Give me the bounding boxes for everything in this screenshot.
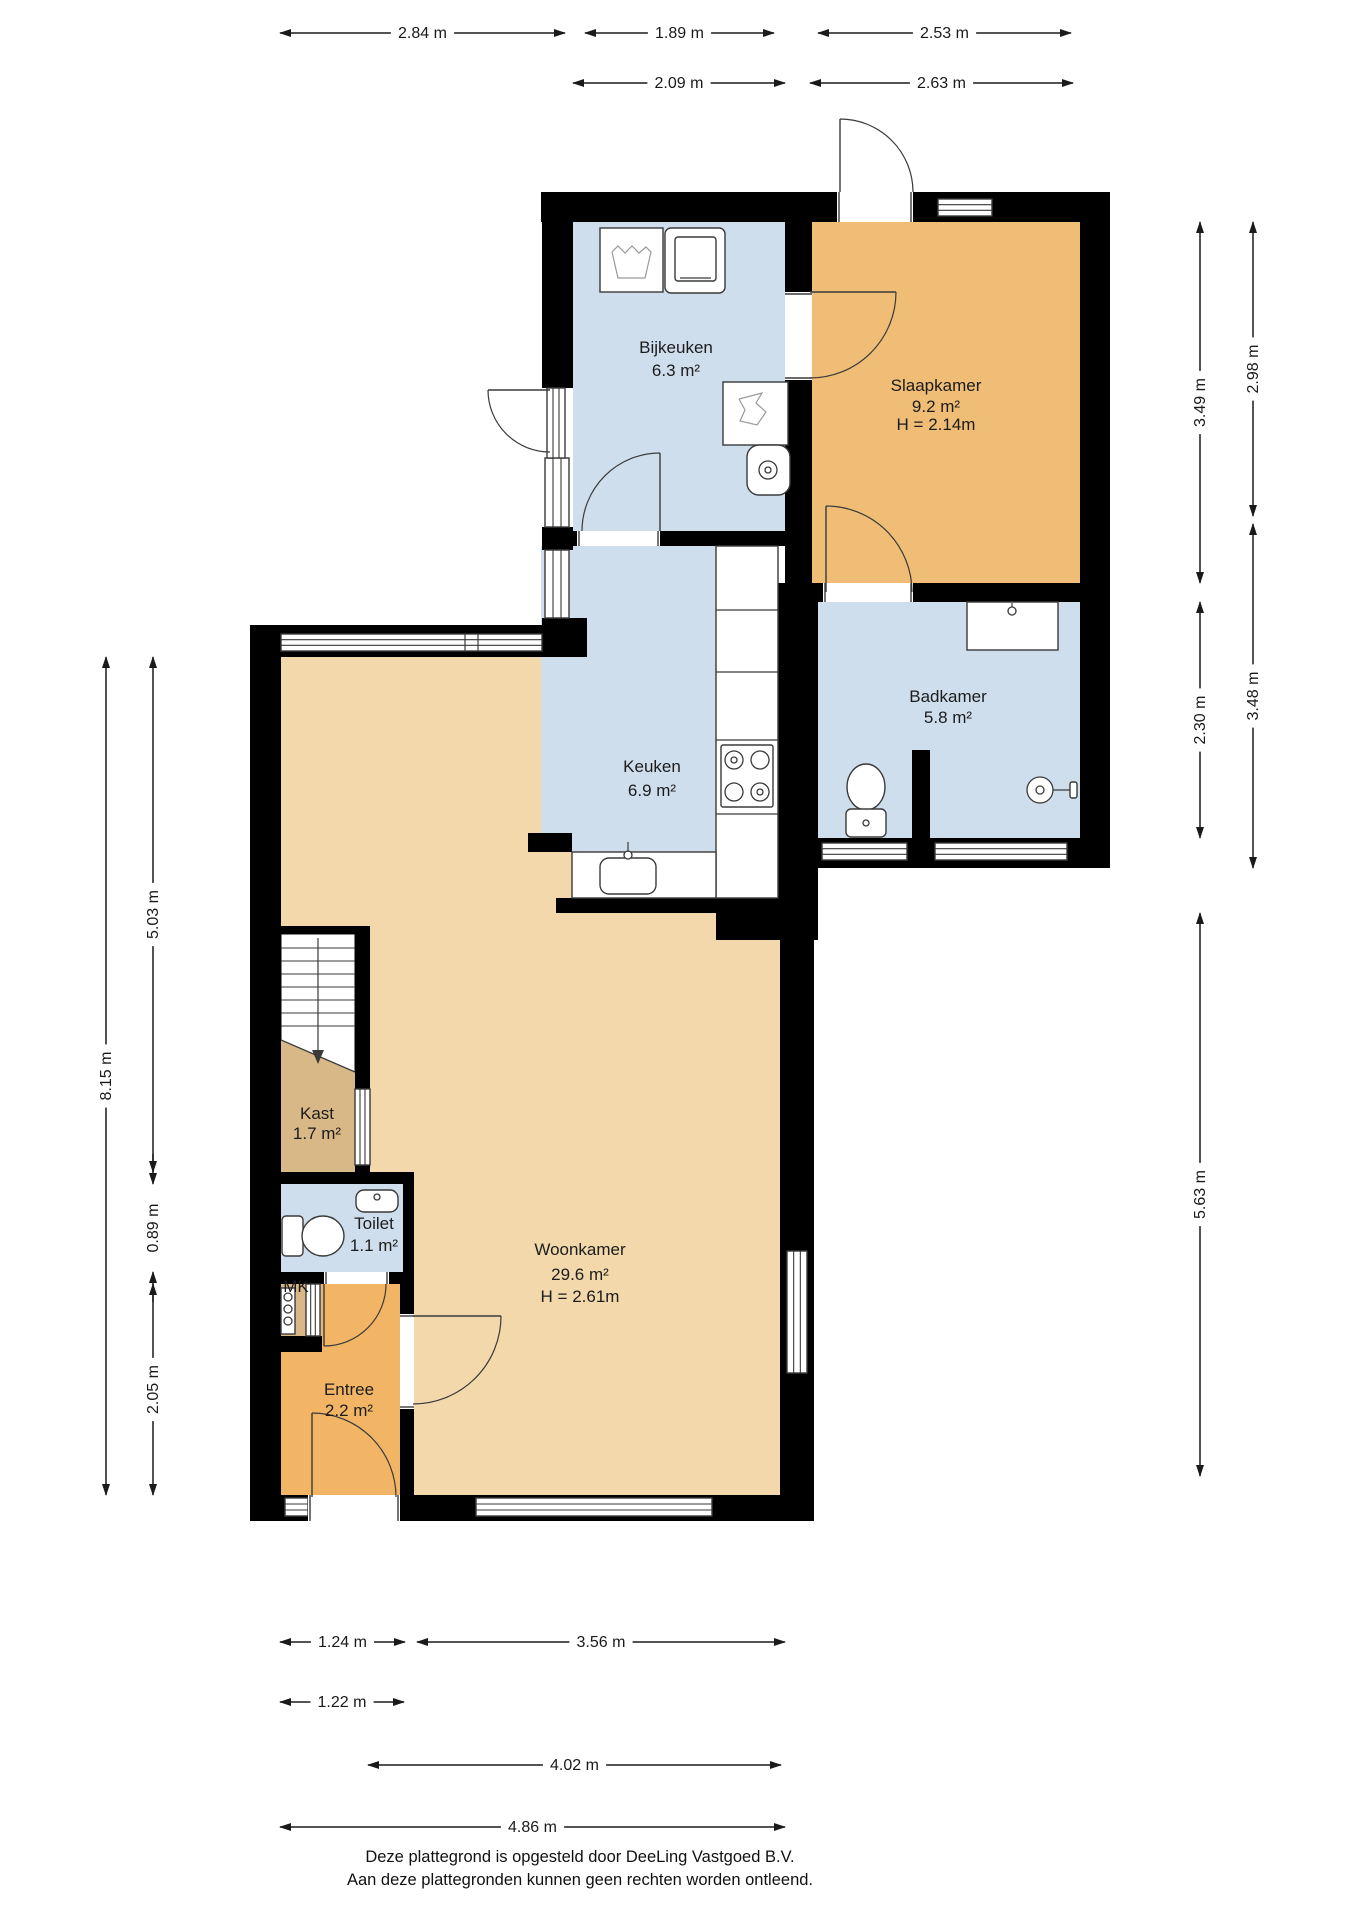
room-keuken-label: 6.9 m² (628, 781, 677, 800)
dimension-annotation: 3.56 m (417, 1632, 785, 1652)
window (476, 1498, 712, 1516)
fixture-shape (765, 467, 771, 473)
door-opening (823, 583, 913, 602)
fixture-shape (716, 546, 778, 898)
dimension-label: 2.09 m (655, 75, 704, 92)
room-kast-label: 1.7 m² (293, 1124, 342, 1143)
wall-segment (250, 625, 281, 1521)
floorplan-page: Woonkamer29.6 m²H = 2.61mKeuken6.9 m²Bij… (0, 0, 1358, 1920)
fixture-shape (1070, 782, 1077, 798)
room-slaapkamer-label: H = 2.14m (897, 415, 976, 434)
dimension-label: 8.15 m (98, 1052, 115, 1101)
dimension-label: 3.49 m (1192, 378, 1209, 427)
dimension-label: 4.86 m (508, 1819, 557, 1836)
wall-segment (778, 583, 818, 913)
toilet-wc (282, 1216, 344, 1256)
dimension-label: 2.53 m (920, 25, 969, 42)
opening-fill (785, 292, 812, 380)
opening-fill (324, 1272, 389, 1284)
dimension-label: 2.63 m (917, 75, 966, 92)
floor-plan-svg: Woonkamer29.6 m²H = 2.61mKeuken6.9 m²Bij… (0, 0, 1358, 1920)
dimension-annotation: 4.86 m (280, 1817, 785, 1837)
window (938, 199, 992, 216)
fixture-shape (600, 228, 663, 292)
fixture-shape (374, 1194, 380, 1200)
dimension-label: 1.89 m (655, 25, 704, 42)
wall-segment (403, 1184, 414, 1272)
door-opening (400, 1314, 414, 1409)
dimension-label-group: 8.15 m (96, 1044, 116, 1107)
dimension-annotation: 4.02 m (368, 1755, 781, 1775)
door-exterior-top (840, 119, 913, 192)
room-kast-label: Kast (300, 1104, 334, 1123)
dimension-label: 5.03 m (145, 890, 162, 939)
door-opening (308, 1495, 400, 1521)
wall-segment (541, 192, 1110, 222)
window (787, 1251, 807, 1373)
opening-fill (547, 388, 565, 458)
fixture-shape (600, 858, 656, 894)
dimension-annotation: 1.89 m (585, 23, 774, 43)
opening-fill (476, 1498, 712, 1516)
dimension-label-group: 3.49 m (1190, 371, 1210, 434)
wall-segment (281, 1336, 322, 1352)
opening-fill (822, 843, 907, 860)
opening-fill (308, 1495, 400, 1521)
opening-fill (787, 1251, 807, 1373)
dryer (665, 228, 725, 293)
wall-segment (716, 898, 818, 940)
opening-fill (938, 199, 992, 216)
bathroom-vanity (967, 602, 1058, 650)
fixture-shape (356, 1190, 398, 1212)
dimension-label: 1.22 m (318, 1694, 367, 1711)
fixture-shape (725, 783, 743, 801)
fixture-shape (675, 237, 716, 281)
room-woonkamer-label: 29.6 m² (551, 1265, 609, 1284)
wall-segment (281, 926, 370, 934)
dimension-annotation: 2.53 m (818, 23, 1071, 43)
room-bijkeuken-label: Bijkeuken (639, 338, 713, 357)
dimension-annotation: 2.84 m (280, 23, 565, 43)
dimension-annotation: 1.22 m (280, 1692, 404, 1712)
room-badkamer-label: Badkamer (909, 687, 987, 706)
stove (721, 745, 773, 807)
fixture-shape (751, 751, 769, 769)
window (935, 843, 1067, 860)
opening-fill (545, 458, 569, 527)
dimension-label: 2.05 m (145, 1365, 162, 1414)
window (822, 843, 907, 860)
wall-segment (785, 222, 812, 583)
fixture-shape (284, 1317, 292, 1325)
dimension-label: 2.30 m (1192, 696, 1209, 745)
wall-segment (556, 898, 716, 913)
dimension-annotation: 2.63 m (810, 73, 1073, 93)
dimension-annotation: 2.30 m (1190, 602, 1210, 838)
window (355, 1089, 370, 1165)
dimension-annotation: 8.15 m (96, 657, 116, 1495)
window (547, 388, 565, 458)
door-swing-arc (488, 390, 550, 452)
room-woonkamer-label: Woonkamer (534, 1240, 626, 1259)
dimension-annotation: 3.49 m (1190, 222, 1210, 583)
opening-fill (823, 583, 913, 602)
room-entree-label: Entree (324, 1380, 374, 1399)
opening-fill (545, 550, 569, 618)
fixture-shape (757, 789, 763, 795)
window (285, 1498, 308, 1516)
door-swing-arc (840, 119, 913, 192)
room-keuken-label: Keuken (623, 757, 681, 776)
door-opening (785, 292, 812, 380)
washing-machine (600, 228, 663, 292)
dimension-label: 3.48 m (1245, 672, 1262, 721)
fixture-shape (863, 820, 869, 826)
dimension-annotation: 2.98 m (1243, 222, 1263, 516)
wall-segment (1080, 192, 1110, 868)
dimension-annotation: 2.05 m (143, 1284, 163, 1495)
room-toilet-label: Toilet (354, 1214, 394, 1233)
fixture-shape (302, 1216, 344, 1256)
footer-line-1: Deze plattegrond is opgesteld door DeeLi… (0, 1846, 1160, 1869)
fixture-shape (731, 757, 737, 763)
fixture-shape (624, 851, 632, 859)
dimension-label: 2.84 m (398, 25, 447, 42)
door-opening (324, 1272, 389, 1284)
room-toilet-label: 1.1 m² (350, 1236, 399, 1255)
fixture-shape (284, 1305, 292, 1313)
opening-fill (837, 192, 913, 222)
dimension-annotation: 5.63 m (1190, 913, 1210, 1476)
door-opening (837, 192, 913, 222)
fixture-shape (847, 764, 885, 810)
dimension-label-group: 2.98 m (1243, 337, 1263, 400)
fixture-shape (282, 1216, 303, 1256)
dimension-label: 2.98 m (1245, 345, 1262, 394)
opening-fill (355, 1089, 370, 1165)
window (545, 550, 569, 618)
bathroom-toilet (846, 764, 886, 837)
room-mk-label: MK (283, 1277, 309, 1296)
dimension-annotation: 1.24 m (280, 1632, 405, 1652)
opening-fill (285, 1498, 308, 1516)
dimension-label: 0.89 m (145, 1204, 162, 1253)
wall-segment (281, 1172, 414, 1184)
wall-segment (912, 750, 930, 868)
opening-fill (400, 1314, 414, 1409)
dimension-label-group: 0.89 m (145, 1204, 162, 1253)
dimension-label: 3.56 m (577, 1634, 626, 1651)
door-opening (577, 531, 660, 546)
fixture-shape (1008, 607, 1016, 615)
toilet-washbasin (356, 1190, 398, 1212)
kitchen-counter (716, 546, 778, 898)
footer-attribution: Deze plattegrond is opgesteld door DeeLi… (0, 1846, 1160, 1892)
fixture-shape (723, 382, 788, 445)
dimension-annotation: 0.89 m (145, 1154, 162, 1302)
window (281, 634, 542, 651)
door-exterior-bijkeuken (488, 390, 550, 452)
dimension-annotation: 3.48 m (1243, 524, 1263, 868)
footer-line-2: Aan deze plattegronden kunnen geen recht… (0, 1869, 1160, 1892)
boiler (747, 445, 790, 495)
room-slaapkamer-label: 9.2 m² (912, 397, 961, 416)
opening-fill (577, 531, 660, 546)
dimension-label: 5.63 m (1192, 1170, 1209, 1219)
dimension-label-group: 2.05 m (143, 1358, 163, 1421)
laundry-basket (723, 382, 788, 445)
room-bijkeuken-label: 6.3 m² (652, 361, 701, 380)
room-woonkamer-label: H = 2.61m (541, 1287, 620, 1306)
dimension-annotation: 5.03 m (143, 657, 163, 1172)
wall-segment (528, 833, 572, 852)
opening-fill (935, 843, 1067, 860)
dimension-label-group: 3.48 m (1243, 664, 1263, 727)
room-badkamer-label: 5.8 m² (924, 708, 973, 727)
window (545, 458, 569, 527)
wall-segment (780, 940, 814, 1521)
dimension-label: 4.02 m (550, 1757, 599, 1774)
room-entree-label: 2.2 m² (325, 1401, 374, 1420)
dimension-label: 1.24 m (318, 1634, 367, 1651)
dimension-label-group: 2.30 m (1190, 688, 1210, 751)
dimension-label-group: 5.63 m (1190, 1163, 1210, 1226)
opening-fill (281, 634, 542, 651)
dimension-label-group: 5.03 m (143, 883, 163, 946)
fixture-shape (1036, 786, 1044, 794)
dimension-annotation: 2.09 m (573, 73, 785, 93)
wall-segment (542, 192, 573, 388)
room-slaapkamer-label: Slaapkamer (891, 376, 982, 395)
